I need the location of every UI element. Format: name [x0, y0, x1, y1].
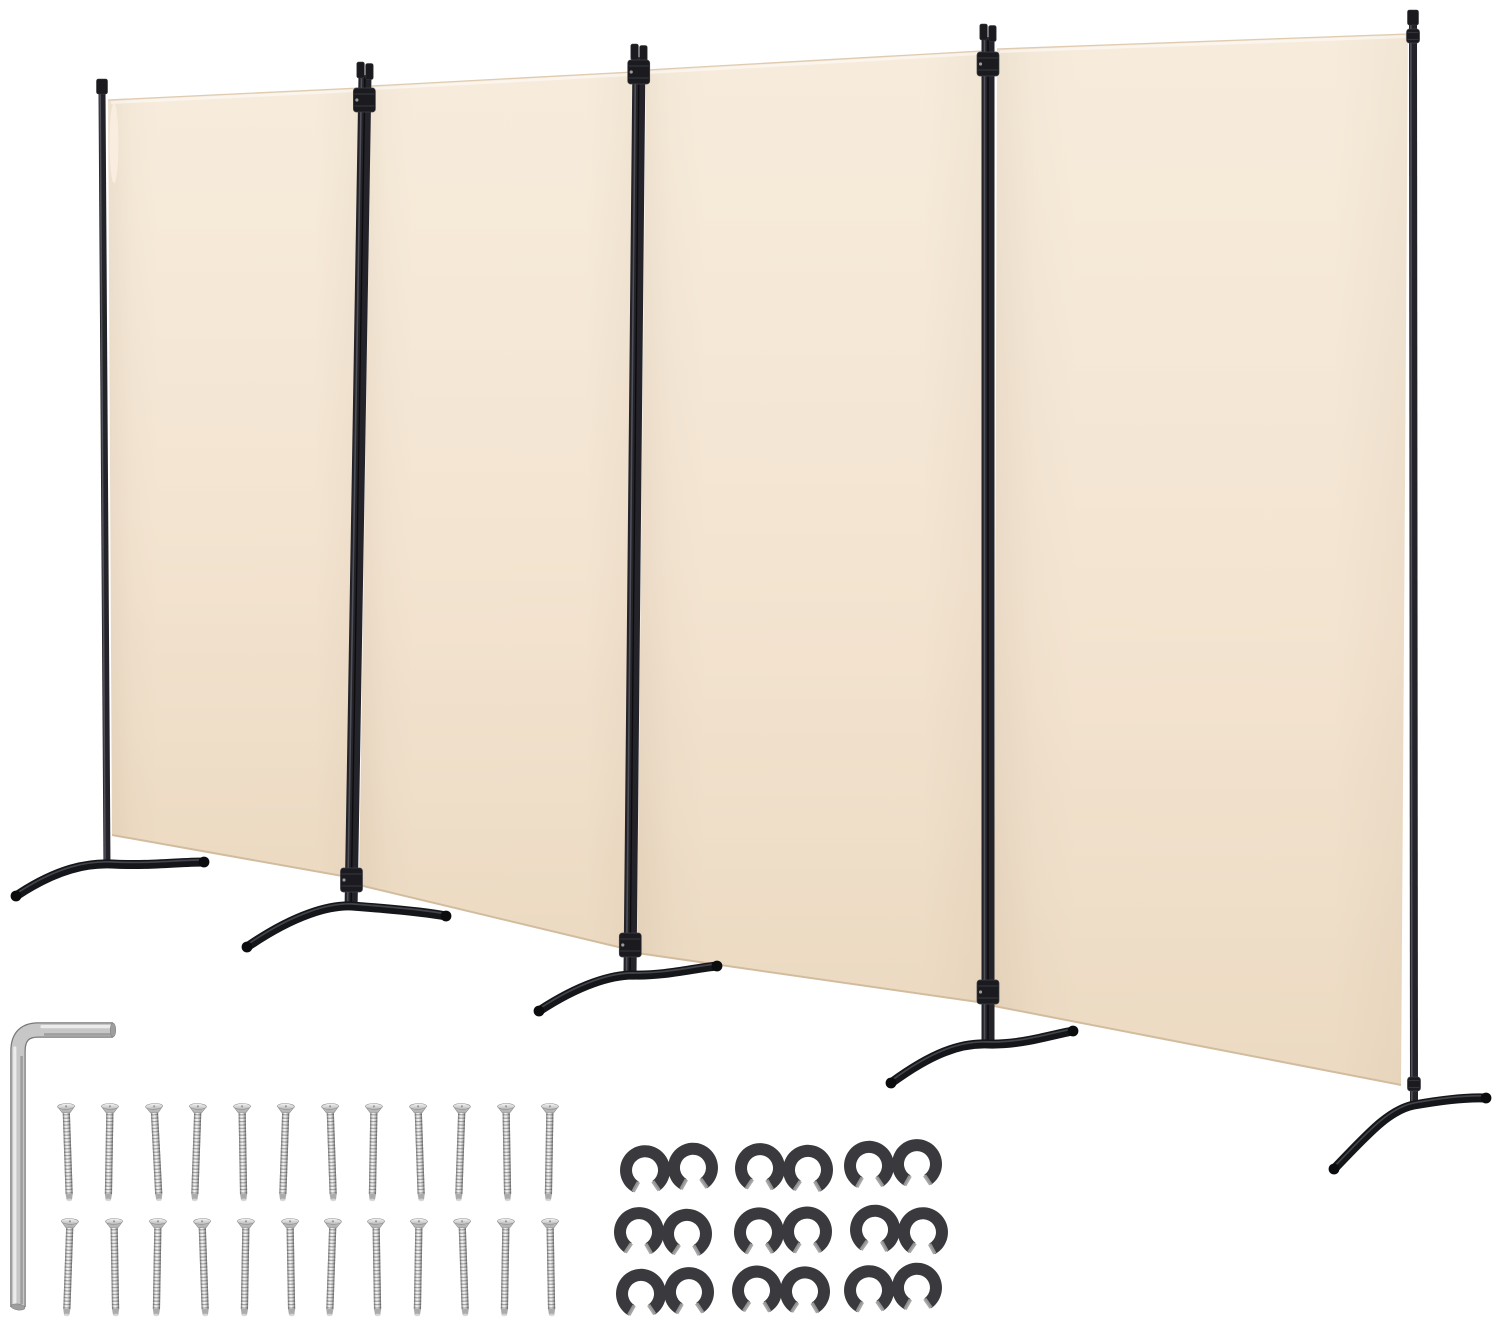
foot-2 [242, 904, 452, 953]
foot-end-cap [441, 911, 452, 922]
foot-end-cap [1481, 1093, 1492, 1104]
foot-end-cap [712, 961, 723, 972]
connector-clip [734, 1206, 833, 1254]
fabric-curl [110, 103, 119, 183]
divider-panels [108, 34, 1408, 1085]
clip-ring [613, 1206, 665, 1254]
foot-1-bar [16, 862, 204, 896]
screw [145, 1103, 167, 1202]
panel-3 [637, 51, 985, 1003]
pole-cap [97, 79, 108, 94]
clip-ring [619, 1144, 671, 1193]
screw [321, 1103, 341, 1201]
screw [496, 1218, 515, 1316]
pole-hinge [1407, 1077, 1420, 1091]
screw [453, 1218, 473, 1316]
clip-ring [615, 1268, 667, 1316]
connector-clip [843, 1138, 943, 1188]
screw [367, 1218, 386, 1316]
screw [58, 1218, 78, 1316]
screw [450, 1103, 470, 1201]
connector-clips [613, 1138, 949, 1316]
foot-end-cap [242, 942, 253, 953]
pole-cap [631, 44, 639, 60]
pole-cap [640, 46, 648, 62]
clip-ring [849, 1203, 901, 1252]
clip-ring [897, 1206, 949, 1255]
screw [497, 1103, 516, 1201]
clip-ring [734, 1142, 786, 1190]
pole-5 [1407, 10, 1421, 1102]
clip-ring [891, 1138, 943, 1186]
pole-1 [97, 79, 108, 868]
foot-5-bar [1334, 1098, 1486, 1169]
connector-clip [843, 1261, 943, 1313]
clip-ring [734, 1207, 785, 1254]
screw [233, 1103, 252, 1201]
screw [186, 1103, 206, 1201]
scene-svg [0, 0, 1493, 1325]
connector-clip [619, 1141, 719, 1193]
product-photo-room-divider [0, 0, 1493, 1325]
foot-end-cap [11, 891, 22, 902]
clip-ring [782, 1206, 833, 1253]
foot-end-cap [1329, 1164, 1340, 1175]
screw [321, 1218, 341, 1316]
pole-cap [366, 64, 374, 80]
screw [148, 1218, 167, 1316]
screw [541, 1218, 560, 1316]
hex-key-tip [110, 1023, 116, 1037]
panel-2 [359, 72, 635, 951]
clip-ring [843, 1140, 895, 1188]
foot-1 [11, 857, 210, 902]
pole-cap [1408, 10, 1419, 25]
foot-end-cap [199, 857, 210, 868]
panel-1 [108, 88, 360, 877]
connector-clip [734, 1142, 834, 1192]
clip-ring [782, 1144, 834, 1192]
clip-ring [780, 1266, 831, 1313]
clip-ring [843, 1264, 895, 1313]
screw [409, 1218, 428, 1316]
clip-ring [663, 1266, 715, 1314]
foot-end-cap [886, 1078, 897, 1089]
foot-end-cap [1068, 1026, 1079, 1037]
screw [540, 1103, 559, 1201]
pole-hinge [1407, 29, 1420, 43]
hex-key [11, 1023, 116, 1311]
screw [57, 1103, 77, 1201]
screw [281, 1218, 300, 1316]
foot-5 [1329, 1093, 1492, 1175]
clip-ring [667, 1141, 719, 1190]
screw [105, 1218, 124, 1316]
screw [193, 1218, 213, 1316]
pole-5-tube [1413, 23, 1414, 1102]
screw [236, 1218, 255, 1316]
screw [100, 1103, 119, 1201]
screw [409, 1103, 429, 1201]
connector-clip [615, 1266, 715, 1316]
screw [274, 1103, 294, 1201]
clip-ring [891, 1261, 943, 1310]
pole-cap [980, 24, 988, 40]
pole-cap [357, 62, 365, 78]
connector-clip [732, 1265, 831, 1313]
connector-clip [613, 1206, 713, 1256]
clip-ring [661, 1208, 713, 1256]
screw [364, 1103, 383, 1201]
pole-cap [989, 26, 997, 42]
foot-end-cap [534, 1006, 545, 1017]
clip-ring [732, 1265, 783, 1312]
screws-set [57, 1103, 560, 1316]
panel-4 [994, 34, 1408, 1085]
connector-clip [849, 1203, 949, 1255]
